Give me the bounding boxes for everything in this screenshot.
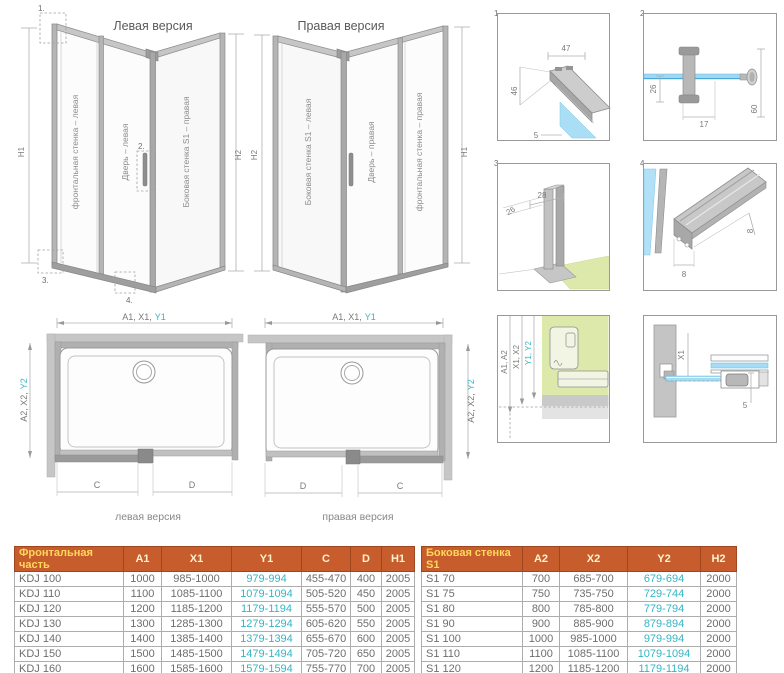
dim-5: 5 <box>534 131 539 140</box>
detail-3-bottom-guide: 3. 28 26 <box>490 155 612 295</box>
value-cell: 1485-1500 <box>162 647 232 662</box>
value-cell: 1279-1294 <box>232 617 302 632</box>
value-cell: 800 <box>523 602 560 617</box>
value-cell: 2000 <box>701 647 737 662</box>
table-row: S1 12012001185-12001179-11942000 <box>422 662 737 673</box>
value-cell: 1300 <box>124 617 162 632</box>
value-cell: 450 <box>351 587 382 602</box>
dim-a1-a2: A1, A2 <box>500 350 509 374</box>
value-cell: 1179-1194 <box>628 662 701 673</box>
value-cell: 785-800 <box>560 602 628 617</box>
header-row: Боковая стенка S1A2X2Y2H2 <box>422 547 737 572</box>
value-cell: 685-700 <box>560 572 628 587</box>
callout-3: 3. <box>42 276 49 285</box>
value-cell: 979-994 <box>232 572 302 587</box>
value-cell: 2005 <box>382 647 415 662</box>
value-cell: 555-570 <box>302 602 351 617</box>
value-cell: 1285-1300 <box>162 617 232 632</box>
c-d-dimensions: D C <box>265 463 442 497</box>
side-wall-table-wrap: Боковая стенка S1A2X2Y2H2S1 70700685-700… <box>421 546 737 673</box>
value-cell: 750 <box>523 587 560 602</box>
value-cell: 1500 <box>124 647 162 662</box>
column-header: H1 <box>382 547 415 572</box>
model-name-cell: KDJ 160 <box>15 662 124 673</box>
model-name-cell: S1 80 <box>422 602 523 617</box>
column-header: H2 <box>701 547 737 572</box>
front-wall-label: фронтальная стенка – правая <box>414 92 424 211</box>
value-cell: 755-770 <box>302 662 351 673</box>
value-cell: 979-994 <box>628 632 701 647</box>
table-row: S1 90900885-900879-8942000 <box>422 617 737 632</box>
value-cell: 1085-1100 <box>162 587 232 602</box>
front-part-table: Фронтальная частьA1X1Y1CDH1KDJ 100100098… <box>14 546 415 673</box>
door-label: Дверь – правая <box>366 121 376 183</box>
column-header: X1 <box>162 547 232 572</box>
value-cell: 605-620 <box>302 617 351 632</box>
value-cell: 700 <box>351 662 382 673</box>
dim-a2x2y2: A2, X2,Y2 <box>20 378 29 422</box>
dim-5: 5 <box>743 401 748 410</box>
value-cell: 729-744 <box>628 587 701 602</box>
detail-4-bottom-rail: 4. 8 8 <box>636 155 781 295</box>
value-cell: 1479-1494 <box>232 647 302 662</box>
dim-60: 60 <box>750 104 759 113</box>
dim-8-right: 8 <box>746 228 755 233</box>
dim-x1-x2: X1, X2 <box>512 344 521 369</box>
left-version-drawing: Левая версия H1 <box>0 0 248 312</box>
value-cell: 550 <box>351 617 382 632</box>
value-cell: 2005 <box>382 632 415 647</box>
right-version-title: Правая версия <box>298 19 385 33</box>
value-cell: 1000 <box>124 572 162 587</box>
value-cell: 1185-1200 <box>560 662 628 673</box>
door-rail <box>266 450 443 464</box>
value-cell: 2000 <box>701 662 737 673</box>
value-cell: 600 <box>351 632 382 647</box>
column-header: D <box>351 547 382 572</box>
h2-dimension: H2 <box>228 34 244 271</box>
value-cell: 505-520 <box>302 587 351 602</box>
dim-c: C <box>94 480 101 490</box>
h2-dimension: H2 <box>250 35 270 271</box>
column-header: Боковая стенка S1 <box>422 547 523 572</box>
dim-28: 28 <box>538 191 547 200</box>
table-row: S1 11011001085-11001079-10942000 <box>422 647 737 662</box>
table-row: KDJ 11011001085-11001079-1094505-5204502… <box>15 587 415 602</box>
side-dimension: A2, X2,Y2 <box>466 344 476 459</box>
shower-tray <box>60 348 232 455</box>
top-dimension: A1, X1,Y1 <box>57 312 232 328</box>
value-cell: 1385-1400 <box>162 632 232 647</box>
door-handle <box>349 153 353 186</box>
dim-c: C <box>397 481 404 491</box>
left-version-title: Левая версия <box>113 19 192 33</box>
table-row: KDJ 1001000985-1000979-994455-4704002005 <box>15 572 415 587</box>
value-cell: 2005 <box>382 662 415 673</box>
detail-1-top-profile: 1. 47 46 5 <box>490 5 612 145</box>
value-cell: 1100 <box>523 647 560 662</box>
shower-tray <box>266 349 438 456</box>
h1-label: H1 <box>17 146 26 157</box>
value-cell: 2000 <box>701 587 737 602</box>
value-cell: 1079-1094 <box>232 587 302 602</box>
value-cell: 1585-1600 <box>162 662 232 673</box>
model-name-cell: S1 70 <box>422 572 523 587</box>
callout-1: 1. <box>38 4 45 13</box>
dim-y1-y2: Y1, Y2 <box>524 341 533 365</box>
value-cell: 2000 <box>701 632 737 647</box>
top-view-right: A1, X1,Y1 A2, X2,Y2 <box>245 312 477 527</box>
value-cell: 2005 <box>382 602 415 617</box>
value-cell: 2005 <box>382 587 415 602</box>
value-cell: 2005 <box>382 572 415 587</box>
side-wall-label: Боковая стенка S1 – правая <box>181 96 191 207</box>
value-cell: 2000 <box>701 617 737 632</box>
table-row: KDJ 16016001585-16001579-1594755-7707002… <box>15 662 415 673</box>
model-name-cell: KDJ 150 <box>15 647 124 662</box>
value-cell: 400 <box>351 572 382 587</box>
table-row: KDJ 14014001385-14001379-1394655-6706002… <box>15 632 415 647</box>
dim-d: D <box>189 480 196 490</box>
column-header: A2 <box>523 547 560 572</box>
table-row: S1 70700685-700679-6942000 <box>422 572 737 587</box>
table-row: KDJ 15015001485-15001479-1494705-7206502… <box>15 647 415 662</box>
value-cell: 2005 <box>382 617 415 632</box>
model-name-cell: KDJ 100 <box>15 572 124 587</box>
column-header: C <box>302 547 351 572</box>
model-name-cell: S1 100 <box>422 632 523 647</box>
value-cell: 1079-1094 <box>628 647 701 662</box>
value-cell: 2000 <box>701 572 737 587</box>
model-name-cell: S1 110 <box>422 647 523 662</box>
value-cell: 885-900 <box>560 617 628 632</box>
front-part-table-wrap: Фронтальная частьA1X1Y1CDH1KDJ 100100098… <box>14 546 415 673</box>
value-cell: 1185-1200 <box>162 602 232 617</box>
column-header: Y2 <box>628 547 701 572</box>
value-cell: 985-1000 <box>162 572 232 587</box>
model-name-cell: KDJ 140 <box>15 632 124 647</box>
dim-a1x1y1: A1, X1,Y1 <box>122 312 166 322</box>
callout-2: 2. <box>138 142 145 151</box>
header-row: Фронтальная частьA1X1Y1CDH1 <box>15 547 415 572</box>
shower-enclosure-spec-sheet: Левая версия H1 <box>0 0 784 673</box>
value-cell: 1579-1594 <box>232 662 302 673</box>
front-wall-label: фронтальная стенка – левая <box>70 94 80 209</box>
left-version-caption: левая версия <box>115 511 181 523</box>
value-cell: 779-794 <box>628 602 701 617</box>
dim-x1: X1 <box>677 350 686 360</box>
h2-label: H2 <box>234 149 243 160</box>
value-cell: 500 <box>351 602 382 617</box>
detail-5-adjustment-section: A1, A2 X1, X2 Y1, Y2 <box>490 307 612 447</box>
door-handle <box>143 153 147 186</box>
dim-d: D <box>300 481 307 491</box>
column-header: A1 <box>124 547 162 572</box>
value-cell: 879-894 <box>628 617 701 632</box>
table-row: KDJ 13013001285-13001279-1294605-6205502… <box>15 617 415 632</box>
value-cell: 1200 <box>523 662 560 673</box>
detail-2-wall-support: 2. 26 17 60 <box>636 5 781 145</box>
value-cell: 705-720 <box>302 647 351 662</box>
value-cell: 985-1000 <box>560 632 628 647</box>
value-cell: 1600 <box>124 662 162 673</box>
model-name-cell: S1 120 <box>422 662 523 673</box>
value-cell: 735-750 <box>560 587 628 602</box>
value-cell: 1085-1100 <box>560 647 628 662</box>
top-dimension: A1, X1,Y1 <box>265 312 443 328</box>
c-d-dimensions: C D <box>57 462 232 496</box>
value-cell: 2000 <box>701 602 737 617</box>
table-row: S1 1001000985-1000979-9942000 <box>422 632 737 647</box>
value-cell: 700 <box>523 572 560 587</box>
value-cell: 900 <box>523 617 560 632</box>
top-view-left: A1, X1,Y1 A2, X2,Y2 <box>20 312 245 527</box>
h2-label: H2 <box>250 149 259 160</box>
value-cell: 1200 <box>124 602 162 617</box>
door-rail <box>55 449 232 463</box>
side-dimension: A2, X2,Y2 <box>20 343 32 458</box>
column-header: X2 <box>560 547 628 572</box>
value-cell: 655-670 <box>302 632 351 647</box>
value-cell: 1100 <box>124 587 162 602</box>
model-name-cell: KDJ 130 <box>15 617 124 632</box>
h1-label: H1 <box>460 146 469 157</box>
table-row: KDJ 12012001185-12001179-1194555-5705002… <box>15 602 415 617</box>
model-name-cell: S1 90 <box>422 617 523 632</box>
side-wall-table: Боковая стенка S1A2X2Y2H2S1 70700685-700… <box>421 546 737 673</box>
value-cell: 1400 <box>124 632 162 647</box>
dim-8-bottom: 8 <box>682 270 687 279</box>
value-cell: 650 <box>351 647 382 662</box>
column-header: Фронтальная часть <box>15 547 124 572</box>
callout-4: 4. <box>126 296 133 305</box>
h1-dimension: H1 <box>454 27 470 263</box>
model-name-cell: KDJ 120 <box>15 602 124 617</box>
table-row: S1 80800785-800779-7942000 <box>422 602 737 617</box>
dim-47: 47 <box>562 44 571 53</box>
model-name-cell: S1 75 <box>422 587 523 602</box>
detail-6-door-section: X1 5 <box>636 307 781 447</box>
right-version-caption: правая версия <box>322 511 393 523</box>
dim-46: 46 <box>510 86 519 95</box>
model-name-cell: KDJ 110 <box>15 587 124 602</box>
right-version-drawing: Правая версия H2 <box>248 0 480 312</box>
door-label: Дверь – левая <box>120 123 130 180</box>
dim-a1x1y1: A1, X1,Y1 <box>332 312 376 322</box>
dim-26: 26 <box>649 84 658 93</box>
value-cell: 455-470 <box>302 572 351 587</box>
column-header: Y1 <box>232 547 302 572</box>
value-cell: 1179-1194 <box>232 602 302 617</box>
side-wall-label: Боковая стенка S1 – левая <box>303 98 313 205</box>
dim-a2x2y2: A2, X2,Y2 <box>466 379 476 423</box>
value-cell: 1379-1394 <box>232 632 302 647</box>
table-row: S1 75750735-750729-7442000 <box>422 587 737 602</box>
value-cell: 1000 <box>523 632 560 647</box>
value-cell: 679-694 <box>628 572 701 587</box>
h1-dimension: H1 <box>17 28 37 263</box>
dim-17: 17 <box>700 120 709 129</box>
